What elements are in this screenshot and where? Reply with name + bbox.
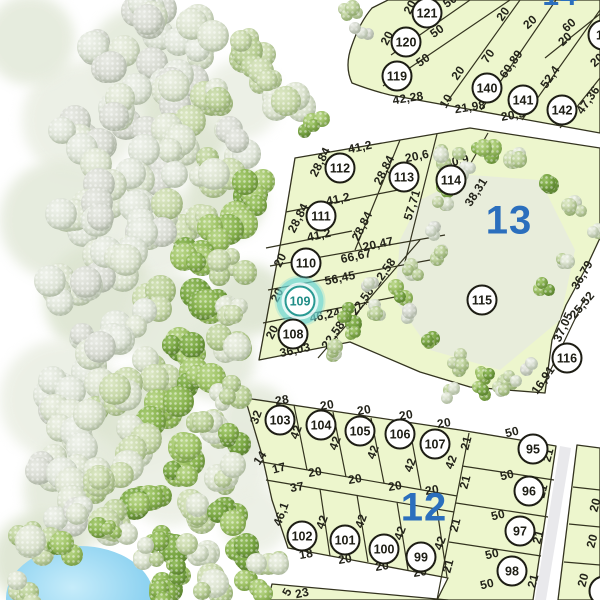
plot-marker-97[interactable]: 97: [505, 516, 536, 547]
plot-marker-103[interactable]: 103: [265, 405, 296, 436]
plot-marker-140[interactable]: 140: [472, 73, 503, 104]
plot-marker-102[interactable]: 102: [287, 521, 318, 552]
plot-marker-98[interactable]: 98: [497, 556, 528, 587]
block-label-12: 12: [401, 486, 448, 531]
plot-marker-100[interactable]: 100: [369, 534, 400, 565]
plot-marker-95[interactable]: 95: [518, 434, 549, 465]
plot-marker-108[interactable]: 108: [278, 319, 309, 350]
plot-marker-120[interactable]: 120: [391, 27, 422, 58]
plot-marker-partial[interactable]: [589, 576, 600, 600]
plot-markers-layer: 1211201191401411421311211311411111010910…: [0, 0, 600, 600]
plot-marker-99[interactable]: 99: [406, 542, 437, 573]
plot-marker-101[interactable]: 101: [330, 525, 361, 556]
plot-marker-106[interactable]: 106: [385, 419, 416, 450]
plot-marker-119[interactable]: 119: [382, 61, 413, 92]
plot-marker-113[interactable]: 113: [389, 162, 420, 193]
plot-marker-96[interactable]: 96: [514, 476, 545, 507]
plot-marker-105[interactable]: 105: [345, 416, 376, 447]
block-label-14: 14: [542, 0, 577, 13]
plot-marker-13[interactable]: 13: [588, 20, 600, 51]
plot-marker-121[interactable]: 121: [412, 0, 443, 29]
plot-marker-115[interactable]: 115: [467, 285, 498, 316]
plot-marker-111[interactable]: 111: [306, 201, 337, 232]
plot-marker-104[interactable]: 104: [306, 410, 337, 441]
plot-marker-112[interactable]: 112: [325, 153, 356, 184]
plot-marker-142[interactable]: 142: [547, 95, 578, 126]
plot-marker-109[interactable]: 109: [285, 286, 316, 317]
plot-marker-110[interactable]: 110: [291, 248, 322, 279]
plot-marker-116[interactable]: 116: [552, 343, 583, 374]
map-canvas: 20502020602020502050207060,8952,447,3642…: [0, 0, 600, 600]
plot-marker-141[interactable]: 141: [508, 85, 539, 116]
plot-marker-107[interactable]: 107: [420, 429, 451, 460]
block-label-13: 13: [486, 199, 533, 244]
plot-marker-114[interactable]: 114: [436, 165, 467, 196]
